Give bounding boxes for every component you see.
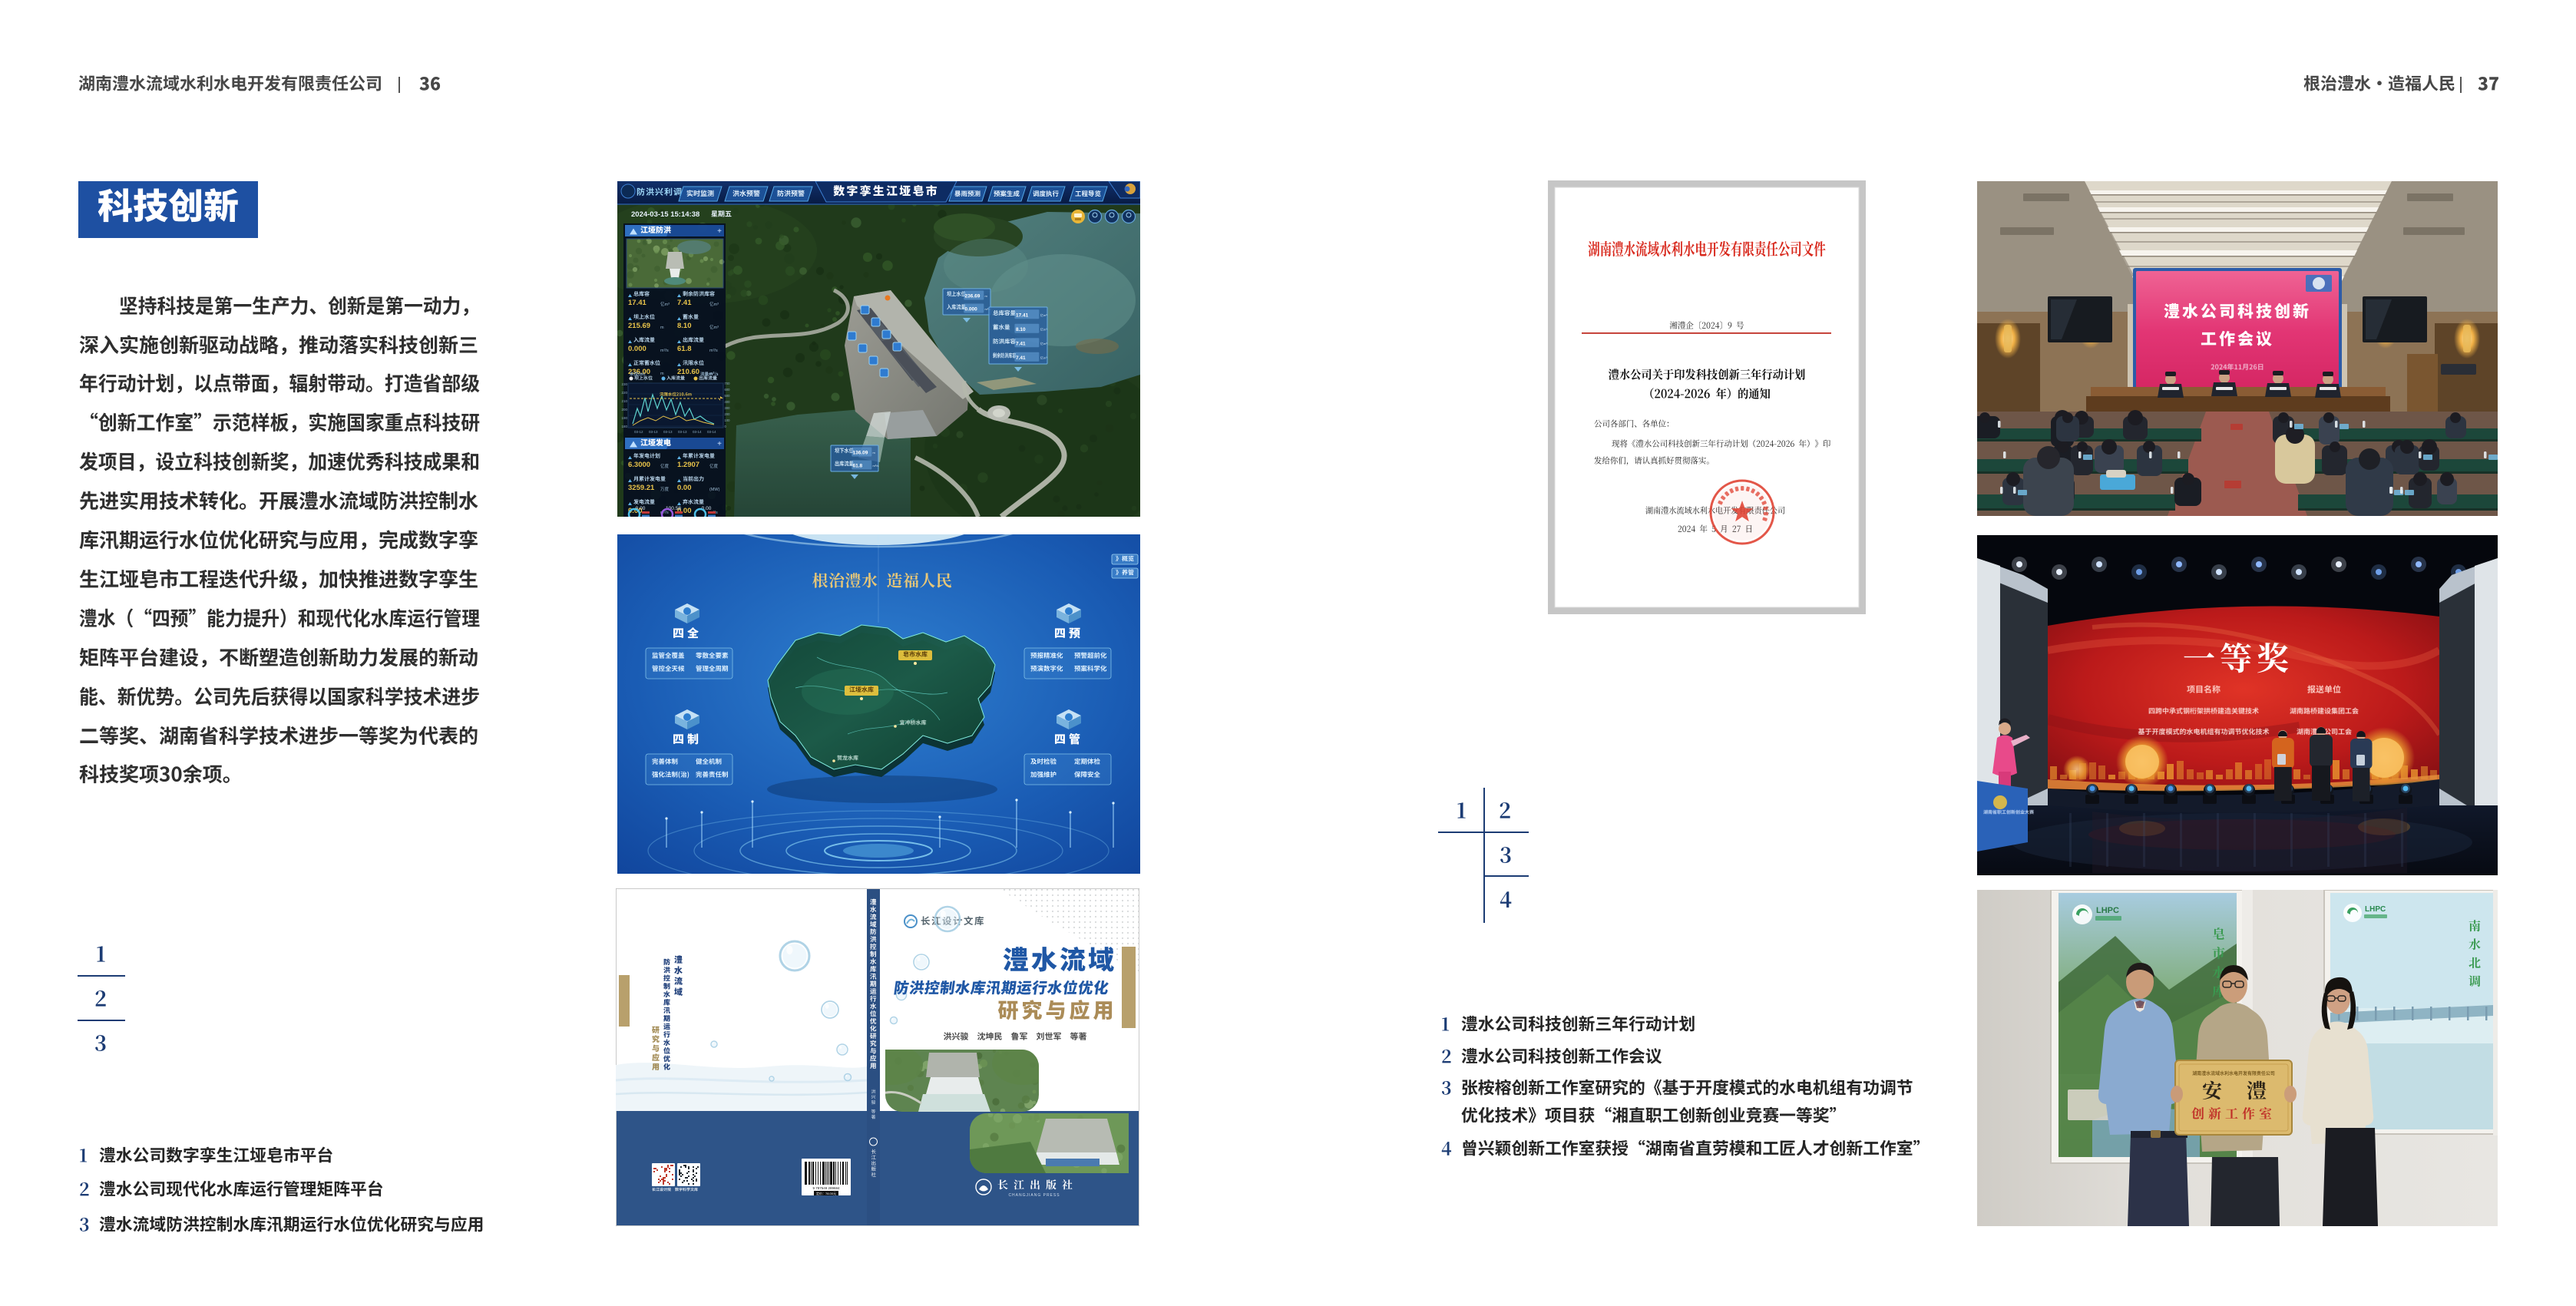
svg-text:亿度: 亿度 bbox=[709, 463, 719, 469]
svg-text:7.41: 7.41 bbox=[1016, 341, 1026, 346]
svg-text:100: 100 bbox=[725, 418, 731, 422]
svg-text:+: + bbox=[717, 440, 722, 448]
svg-text:03-14: 03-14 bbox=[707, 430, 716, 434]
svg-text:m³/s: m³/s bbox=[660, 349, 669, 353]
svg-text:亿m³: 亿m³ bbox=[660, 301, 670, 307]
svg-text:亿m³: 亿m³ bbox=[1040, 326, 1047, 331]
svg-text:8.10: 8.10 bbox=[677, 322, 692, 330]
svg-text:215.69: 215.69 bbox=[628, 322, 650, 330]
svg-text:61.8: 61.8 bbox=[853, 464, 863, 469]
svg-text:LHPC: LHPC bbox=[2096, 906, 2119, 915]
svg-text:61.8: 61.8 bbox=[677, 345, 692, 353]
svg-text:03-13: 03-13 bbox=[678, 430, 687, 434]
svg-text:m³/s: m³/s bbox=[709, 349, 718, 353]
svg-text:0.000: 0.000 bbox=[965, 307, 978, 312]
svg-text:7.41: 7.41 bbox=[677, 299, 692, 307]
svg-text:+: + bbox=[717, 227, 722, 236]
svg-text:m³/s: m³/s bbox=[873, 464, 879, 468]
svg-text:03-13: 03-13 bbox=[663, 430, 673, 434]
svg-text:m: m bbox=[660, 372, 664, 376]
svg-text:8.10: 8.10 bbox=[1016, 327, 1026, 332]
svg-text:1.2907: 1.2907 bbox=[677, 461, 699, 469]
svg-text:亿m³: 亿m³ bbox=[1040, 355, 1047, 359]
svg-text:200: 200 bbox=[725, 412, 731, 416]
svg-text:0.00: 0.00 bbox=[677, 484, 692, 492]
svg-text:220: 220 bbox=[621, 391, 627, 395]
svg-text:700: 700 bbox=[725, 382, 731, 385]
svg-text:m: m bbox=[660, 326, 664, 330]
svg-text:亿m³: 亿m³ bbox=[709, 301, 719, 307]
svg-text:400: 400 bbox=[725, 400, 731, 404]
svg-text:210: 210 bbox=[621, 399, 627, 403]
svg-text:17.41: 17.41 bbox=[1016, 312, 1029, 318]
svg-text:2024-03-15 15:14:38: 2024-03-15 15:14:38 bbox=[631, 210, 699, 219]
svg-text:136.09: 136.09 bbox=[853, 451, 868, 456]
svg-text:03-12: 03-12 bbox=[634, 430, 643, 434]
svg-text:定价：78.00元: 定价：78.00元 bbox=[816, 1191, 836, 1195]
svg-text:3259.21: 3259.21 bbox=[628, 484, 655, 492]
svg-text:180: 180 bbox=[621, 425, 627, 428]
svg-text:230: 230 bbox=[621, 382, 627, 386]
svg-text:03-14: 03-14 bbox=[693, 430, 702, 434]
svg-text:LHPC: LHPC bbox=[2365, 905, 2386, 914]
svg-text:9 787549 289684: 9 787549 289684 bbox=[812, 1186, 840, 1190]
svg-text:亿m³: 亿m³ bbox=[1040, 341, 1047, 346]
svg-text:200: 200 bbox=[621, 408, 627, 412]
svg-text:236.69: 236.69 bbox=[965, 294, 980, 299]
svg-text:300: 300 bbox=[725, 406, 731, 410]
svg-text:亿m³: 亿m³ bbox=[709, 324, 719, 330]
svg-text:17.41: 17.41 bbox=[628, 299, 646, 307]
svg-text:210.60: 210.60 bbox=[677, 368, 699, 376]
svg-text:6.3000: 6.3000 bbox=[628, 461, 650, 469]
svg-text:万度: 万度 bbox=[660, 486, 670, 492]
svg-text:0.000: 0.000 bbox=[628, 345, 646, 353]
svg-text:190: 190 bbox=[621, 416, 627, 420]
svg-text:亿m³: 亿m³ bbox=[1040, 312, 1047, 317]
svg-text:600: 600 bbox=[725, 388, 731, 392]
svg-text:亿度: 亿度 bbox=[660, 463, 670, 469]
svg-text:500: 500 bbox=[725, 394, 731, 398]
svg-text:CHANGJIANG PRESS: CHANGJIANG PRESS bbox=[1008, 1193, 1060, 1198]
svg-text:03-13: 03-13 bbox=[649, 430, 658, 434]
svg-text:7.41: 7.41 bbox=[1016, 355, 1026, 361]
svg-text:(MW): (MW) bbox=[709, 488, 720, 492]
svg-text:m: m bbox=[709, 372, 713, 376]
